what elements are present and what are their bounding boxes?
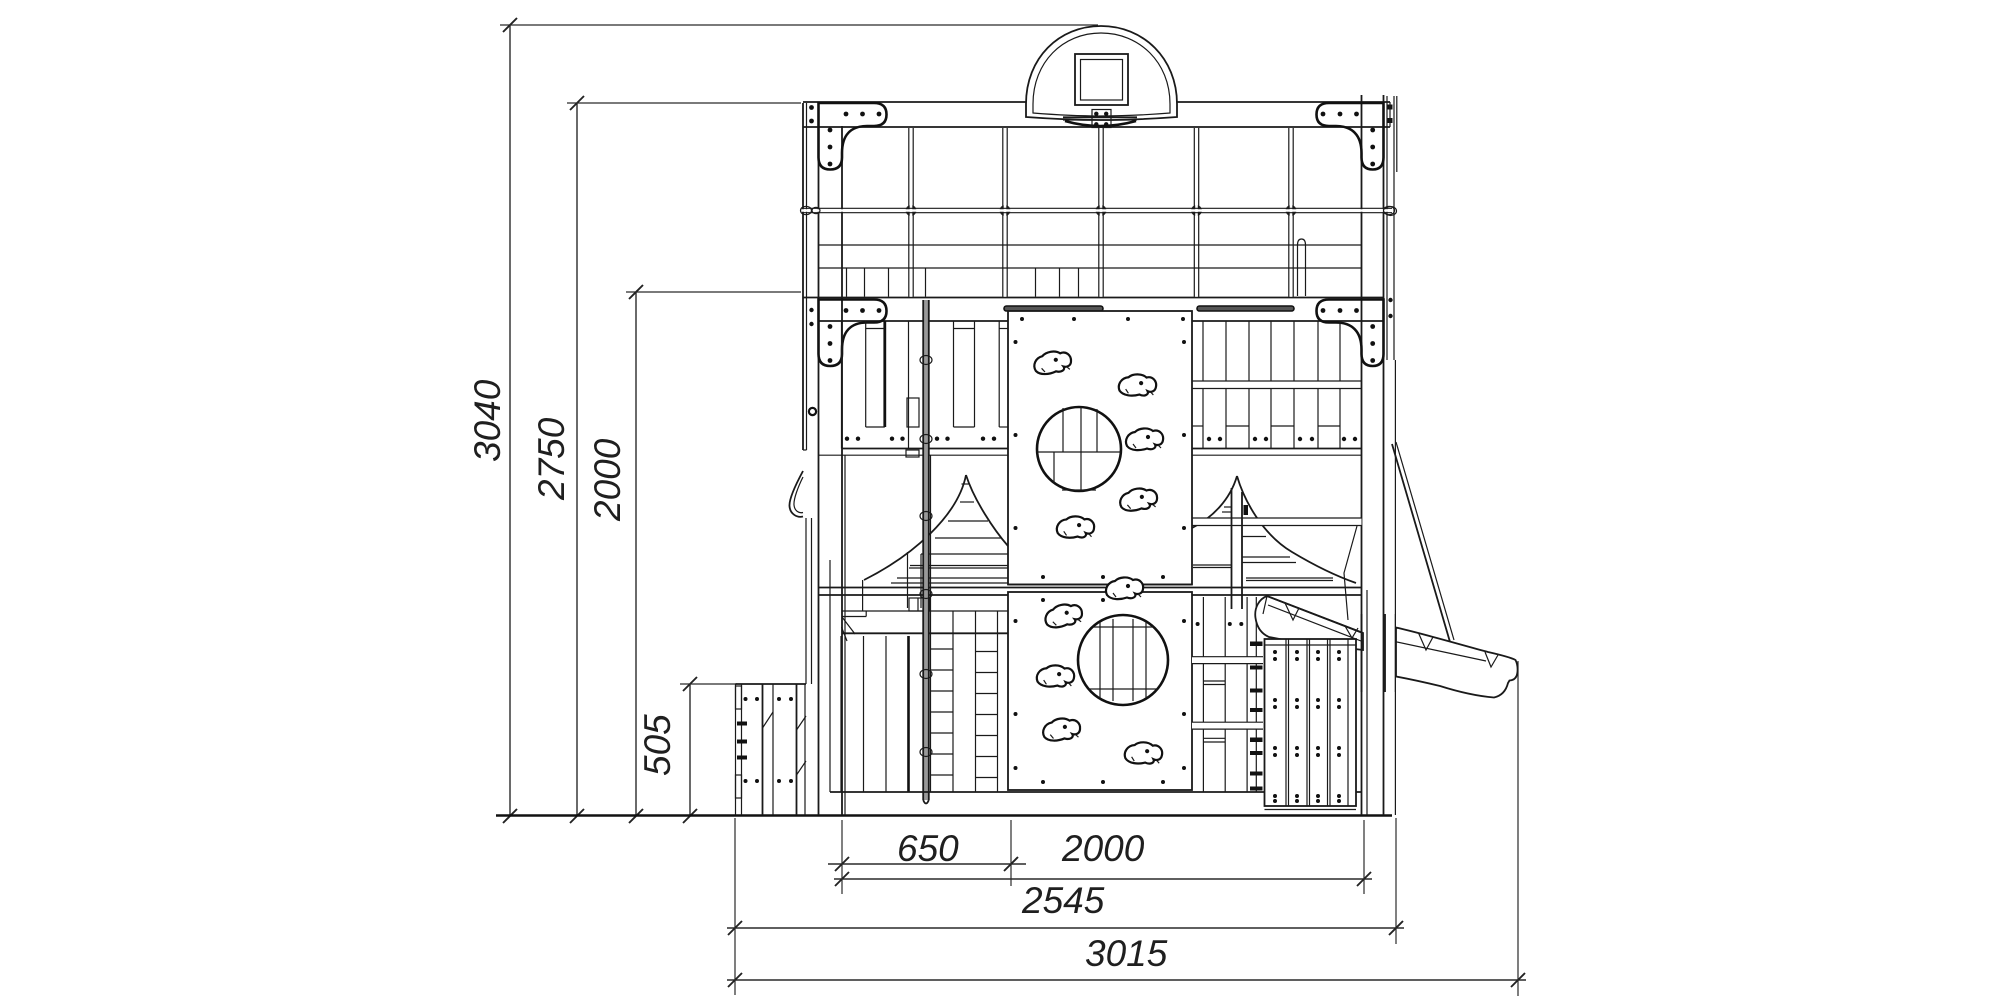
svg-text:2545: 2545 <box>1021 880 1105 921</box>
svg-text:2750: 2750 <box>531 417 572 501</box>
svg-text:505: 505 <box>637 714 678 776</box>
svg-text:2000: 2000 <box>1061 828 1145 869</box>
svg-text:3015: 3015 <box>1085 933 1168 974</box>
svg-text:3040: 3040 <box>467 379 508 462</box>
svg-text:650: 650 <box>897 828 959 869</box>
svg-text:2000: 2000 <box>587 438 628 522</box>
